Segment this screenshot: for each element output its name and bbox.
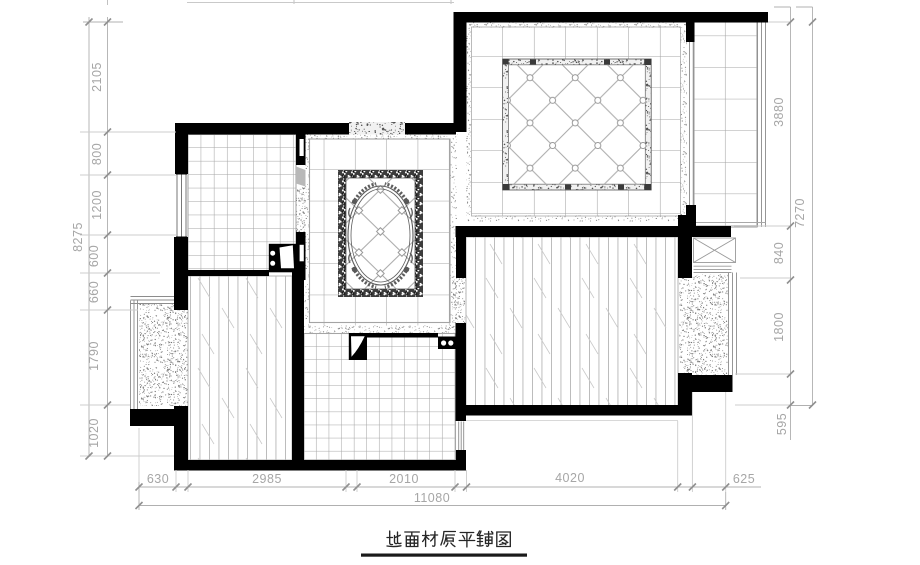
svg-text:3880: 3880	[772, 97, 786, 127]
svg-text:1800: 1800	[772, 312, 786, 342]
svg-text:1020: 1020	[87, 418, 101, 448]
svg-text:2105: 2105	[90, 62, 104, 92]
svg-text:595: 595	[775, 413, 789, 435]
svg-text:840: 840	[772, 242, 786, 264]
svg-text:11080: 11080	[414, 491, 450, 505]
svg-text:1790: 1790	[87, 341, 101, 371]
svg-text:800: 800	[90, 143, 104, 165]
svg-text:630: 630	[147, 472, 169, 486]
svg-text:600: 600	[87, 245, 101, 267]
svg-text:2985: 2985	[252, 472, 282, 486]
svg-text:625: 625	[733, 472, 755, 486]
svg-text:7270: 7270	[793, 198, 807, 228]
svg-text:4020: 4020	[555, 471, 585, 485]
svg-text:660: 660	[87, 281, 101, 303]
svg-text:1200: 1200	[90, 190, 104, 220]
svg-text:2010: 2010	[389, 472, 419, 486]
svg-text:8275: 8275	[71, 222, 85, 252]
